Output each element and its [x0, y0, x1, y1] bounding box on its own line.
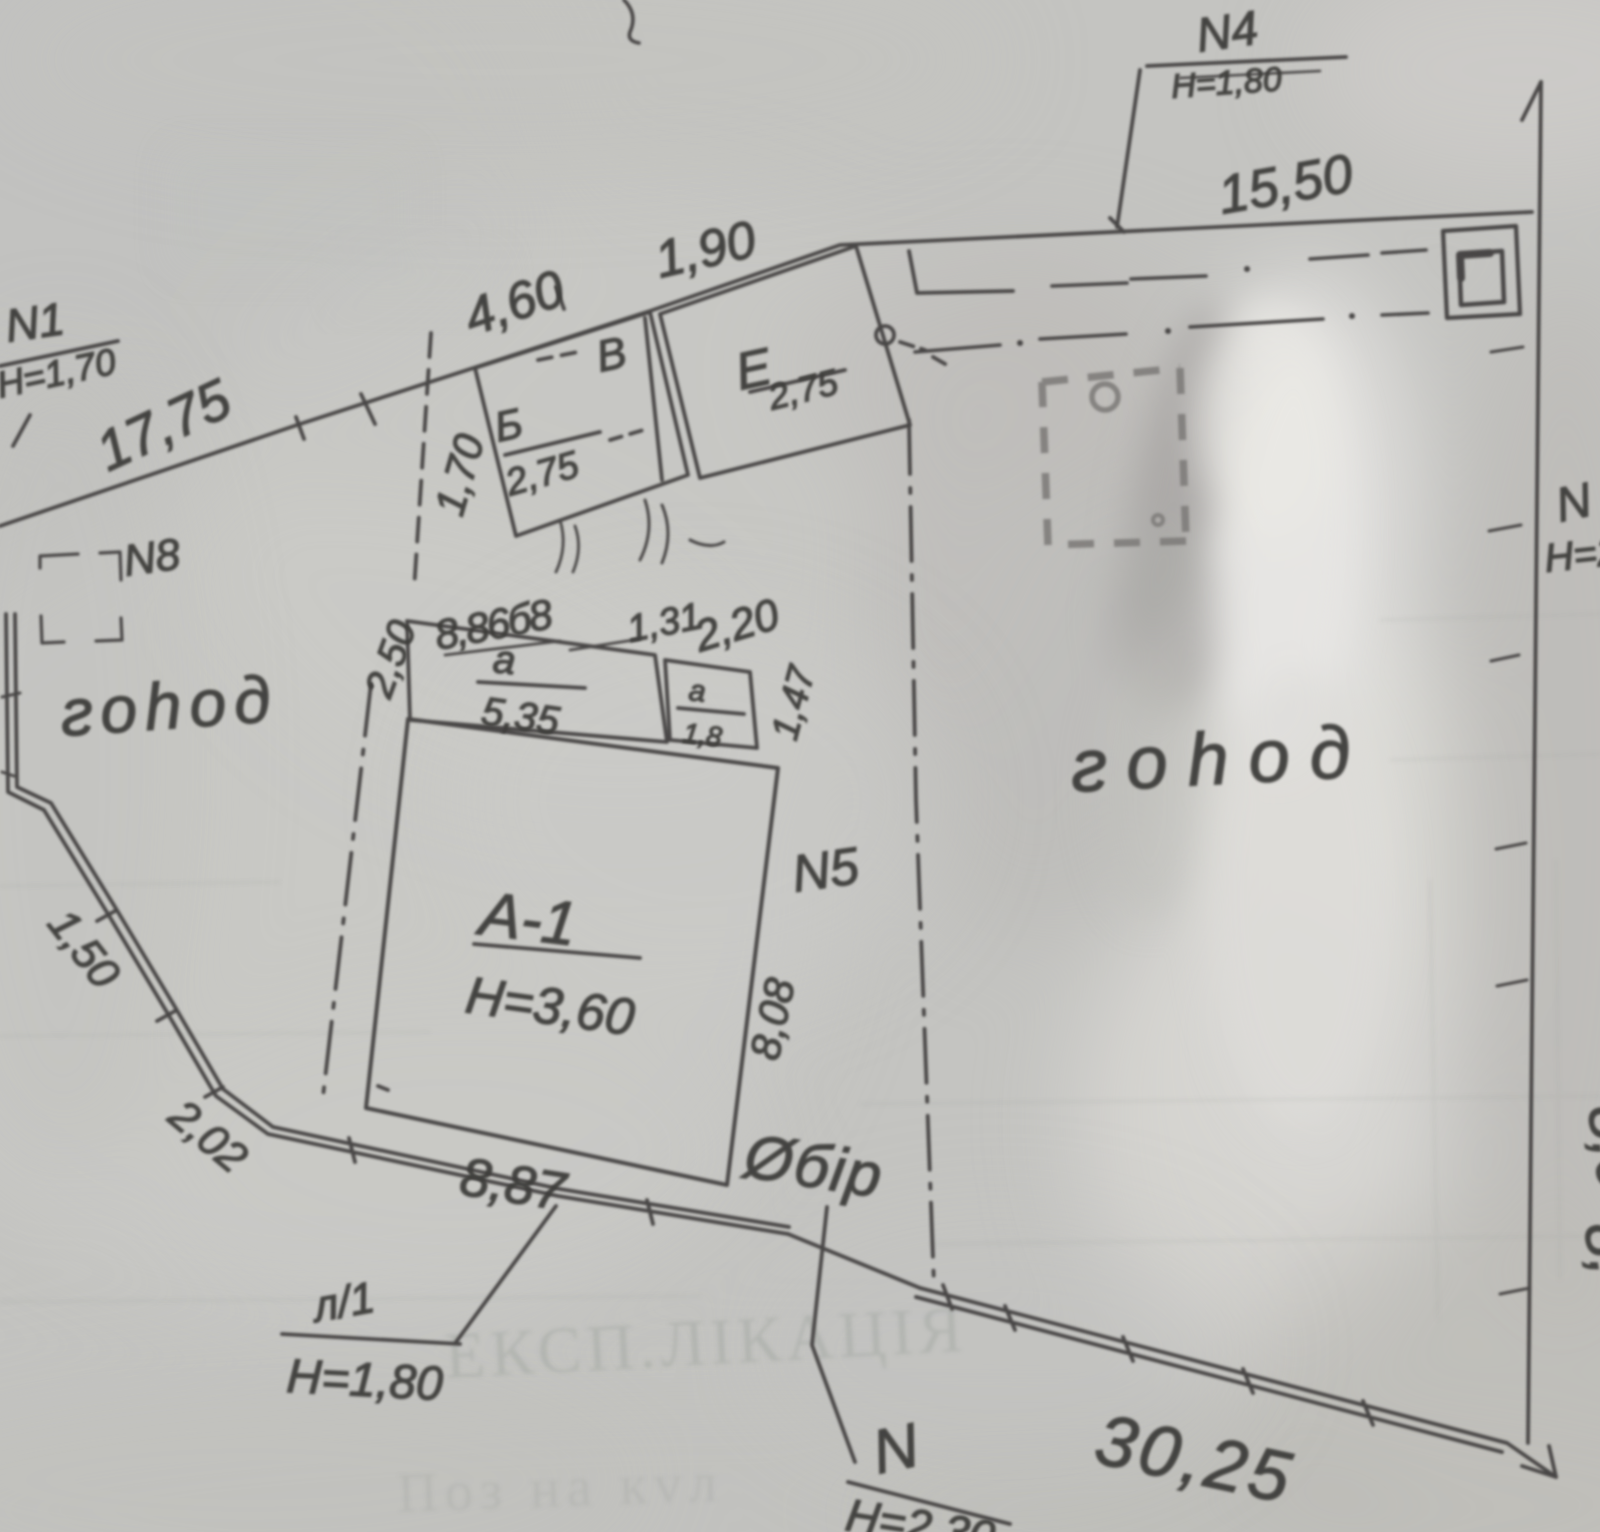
svg-text:гоhод: гоhод [1068, 709, 1372, 808]
svg-text:Н=1,80: Н=1,80 [1170, 60, 1283, 106]
svg-text:N4: N4 [1193, 2, 1261, 63]
svg-text:N5: N5 [789, 837, 864, 904]
svg-text:N1: N1 [2, 292, 67, 352]
svg-text:А-1: А-1 [472, 879, 580, 960]
svg-text:1,8: 1,8 [681, 717, 724, 753]
svg-text:гоhод: гоhод [58, 661, 281, 750]
svg-text:Н=1,80: Н=1,80 [285, 1350, 444, 1411]
svg-text:Поз на кvл: Поз на кvл [396, 1452, 725, 1525]
svg-text:N8: N8 [121, 529, 184, 585]
svg-text:а: а [687, 674, 707, 709]
svg-text:Н=2: Н=2 [1542, 529, 1600, 581]
